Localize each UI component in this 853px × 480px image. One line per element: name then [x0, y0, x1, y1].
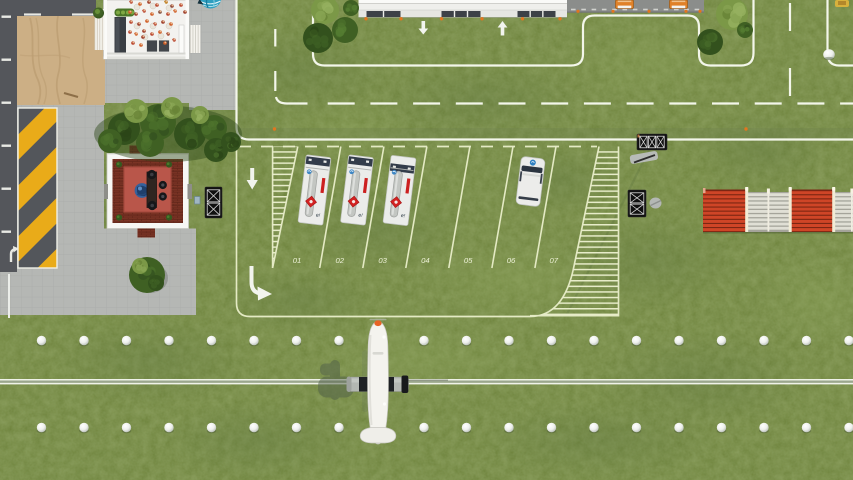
svg-text:01: 01	[293, 256, 302, 265]
svg-text:03: 03	[378, 256, 387, 265]
svg-text:04: 04	[421, 256, 430, 265]
svg-text:02: 02	[336, 256, 345, 265]
svg-text:06: 06	[507, 256, 516, 265]
svg-text:07: 07	[550, 256, 559, 265]
svg-text:05: 05	[464, 256, 473, 265]
